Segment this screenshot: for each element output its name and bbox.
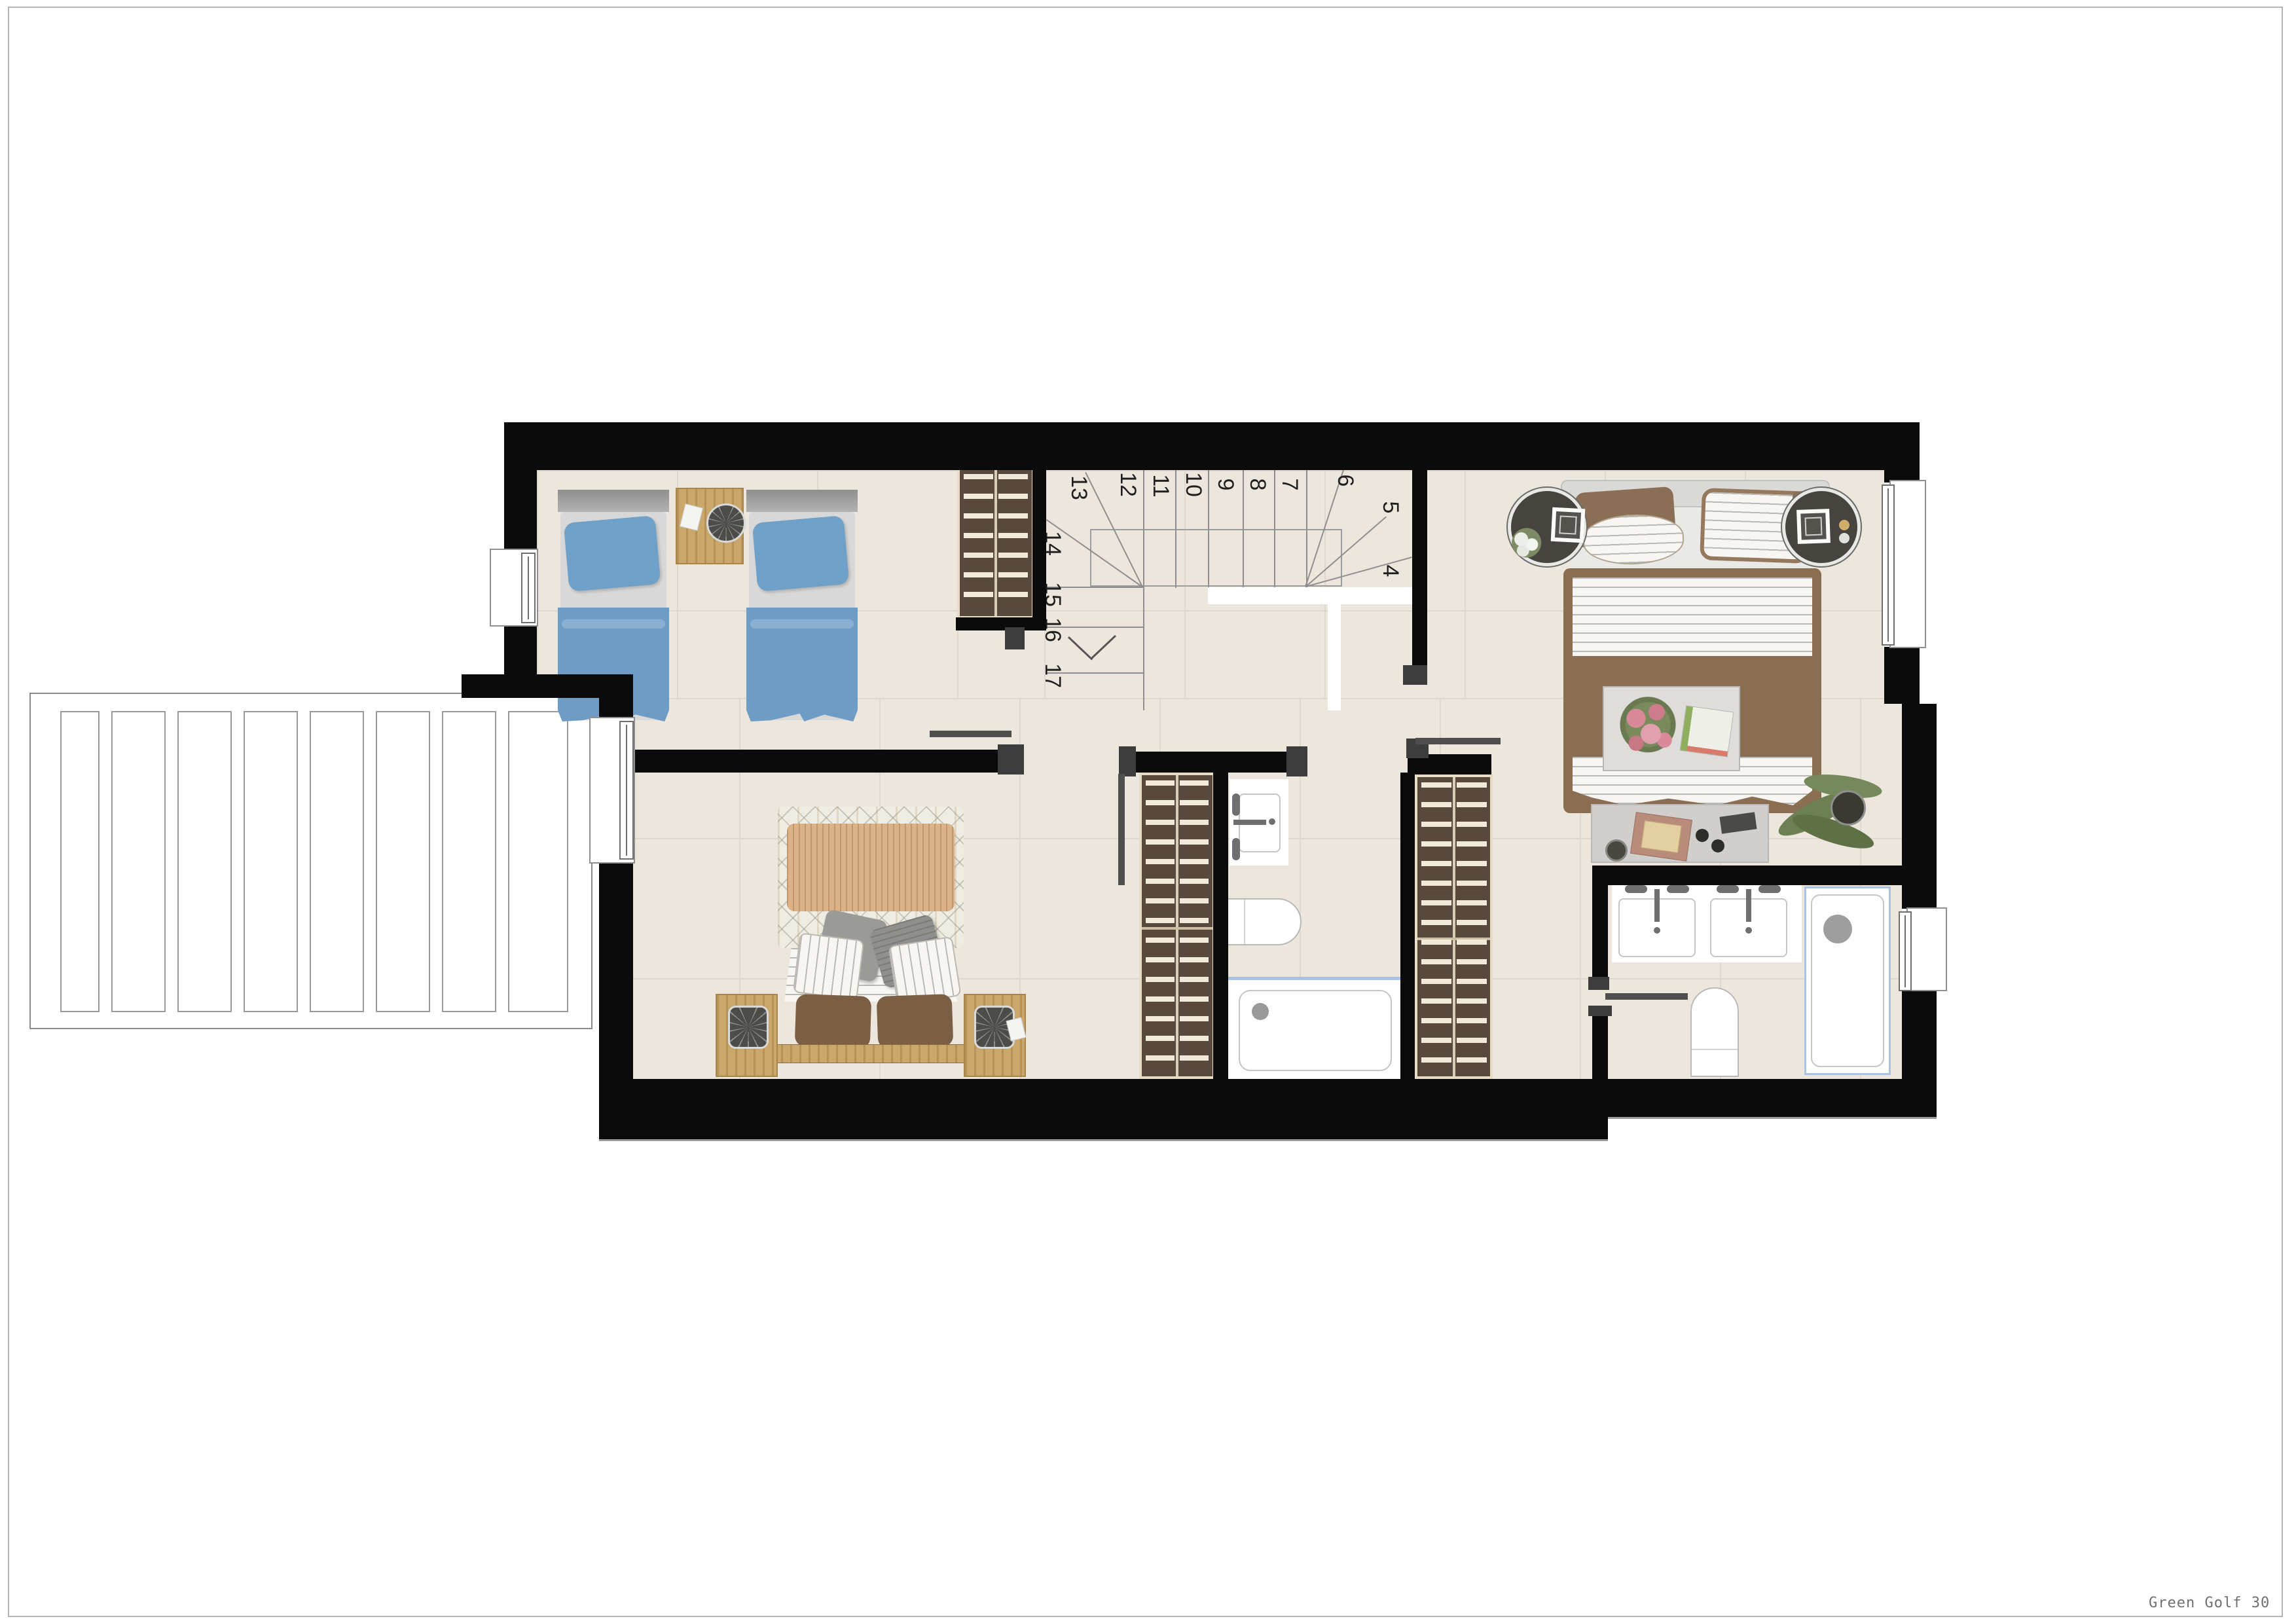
double-vanity [1612,885,1802,962]
faucet-handle [1667,885,1689,893]
faucet-icon [1233,820,1266,825]
plant-pot [1831,790,1866,826]
wall-bottom-right [1608,1079,1937,1117]
wall-right-upper [1884,422,1920,483]
desk [1591,804,1769,863]
toilet [1227,898,1302,945]
sliding-door-icon [1415,738,1501,744]
stair-tread-line [1175,470,1176,588]
nightstand [716,994,778,1077]
window-glazing [1899,911,1912,991]
sliding-door-icon [1118,774,1125,885]
stair-tread-line [1306,470,1307,588]
door-jamb [1286,746,1307,776]
wall-top [504,422,1920,470]
wall-step [462,674,633,698]
stair-tread-line [1143,470,1144,588]
stair-step-number: 12 [1114,470,1142,499]
floor-plan-canvas: Green Golf 30 4 5 6 7 8 9 10 11 12 13 14… [0,0,2296,1623]
lamp-icon [1839,520,1850,530]
pergola-slat [495,711,509,1012]
twin-bed [746,490,858,720]
tablet [1719,812,1757,833]
window-glazing [619,721,634,860]
duvet [746,608,858,721]
stair-step-number: 17 [1038,661,1067,690]
wall-masterbath-west [1592,1012,1608,1079]
stair-step-number: 8 [1243,470,1272,499]
stair-step-number: 4 [1376,556,1405,585]
door-jamb [1588,1006,1612,1016]
plant-icon [1768,763,1882,867]
drain-icon [1823,915,1852,943]
picture-frame-icon [1796,509,1831,544]
paper [680,503,703,531]
headboard [558,490,669,512]
wardrobe [1415,775,1493,1079]
picture-frame-icon [1551,507,1586,543]
pillow [877,994,954,1049]
wall-left-lower [599,698,633,718]
sink [1230,779,1288,866]
book [1679,705,1734,757]
camera-lens [1696,829,1709,842]
wardrobe [957,466,1034,619]
door-jamb [1005,627,1025,649]
tray [1630,812,1692,861]
double-bed [778,807,964,1062]
stair-step-number: 5 [1376,493,1405,522]
wall-bottom-left [599,1079,1608,1139]
nightstand-round [1508,488,1586,566]
stair-step-number: 6 [1331,466,1360,495]
headboard [771,1044,972,1063]
pergola-slat [230,711,245,1012]
bathtub [1228,977,1401,1079]
pergola-slat [164,711,179,1012]
wall-hall-bedrooms [599,750,1015,773]
door-jamb [1403,665,1427,685]
pergola-slat [297,711,311,1012]
wall-masterbath-west [1592,885,1608,982]
wall-stair-right [1412,470,1427,668]
pillow [795,994,872,1049]
nightstand [676,488,744,564]
headboard [746,490,858,512]
wall-right-lower [1902,990,1937,1079]
faucet-handle [1232,838,1240,860]
wall-left-upper [504,422,537,550]
nightstand-round [1782,488,1861,566]
knit-throw [787,824,955,911]
bathtub-basin [1239,990,1392,1071]
pillow [564,515,661,592]
wall-right-upper [1884,647,1920,704]
candle [1605,839,1628,862]
door-jamb [998,744,1024,775]
window-glazing [1882,484,1895,646]
ceiling-fan-icon [728,1006,769,1049]
lamp-icon [1839,533,1850,543]
stair-step-number: 13 [1065,473,1093,502]
drain-icon [1252,1003,1269,1020]
stair-opening-cut [1208,587,1412,604]
sliding-door-icon [1605,993,1688,1000]
wall-right-lower [1902,704,1937,909]
wall-stair-left [1032,470,1046,630]
pillow [793,932,864,1000]
pergola-slat [98,711,113,1012]
pillow [752,515,850,592]
stair-winder-column-line [1143,587,1144,710]
window-icon [1906,907,1947,991]
door-jamb [1588,977,1609,990]
stair-step-number: 7 [1275,470,1304,499]
nightstand [964,994,1026,1077]
wardrobe [1139,773,1215,1079]
faucet-handle [1625,885,1647,893]
shower [1804,886,1891,1075]
faucet-icon [1746,889,1751,922]
window-glazing [521,553,536,623]
pergola-slat [429,711,443,1012]
flowers-icon [1618,697,1677,759]
project-label: Green Golf 30 [2149,1596,2270,1611]
wall-stair-left-cap [956,617,1046,630]
toilet [1690,987,1739,1077]
faucet-icon [1654,889,1660,922]
faucet-handle [1717,885,1739,893]
bed-tray [1603,686,1740,771]
pergola-inner-outline [60,711,568,1012]
sliding-door-icon [930,731,1011,737]
stair-opening-cut [1328,604,1341,710]
pergola-slat [363,711,377,1012]
stair-step-number: 11 [1146,471,1175,500]
wall-masterbath-top [1592,866,1905,885]
stair-step-number: 9 [1211,470,1240,499]
ceiling-fan-icon [706,503,746,543]
wall-bathroom1-top [1133,752,1306,773]
stair-step-number: 10 [1179,470,1208,499]
stair-tread-line [1208,470,1209,588]
faucet-handle [1232,793,1240,816]
faucet-handle [1758,885,1781,893]
camera-lens [1711,839,1724,852]
window-icon [1889,480,1926,648]
wall-bathroom1-left [1213,773,1228,1079]
door-jamb [1119,746,1136,776]
flowers-icon [1507,525,1542,560]
wall-bathroom1-right [1400,773,1415,1079]
